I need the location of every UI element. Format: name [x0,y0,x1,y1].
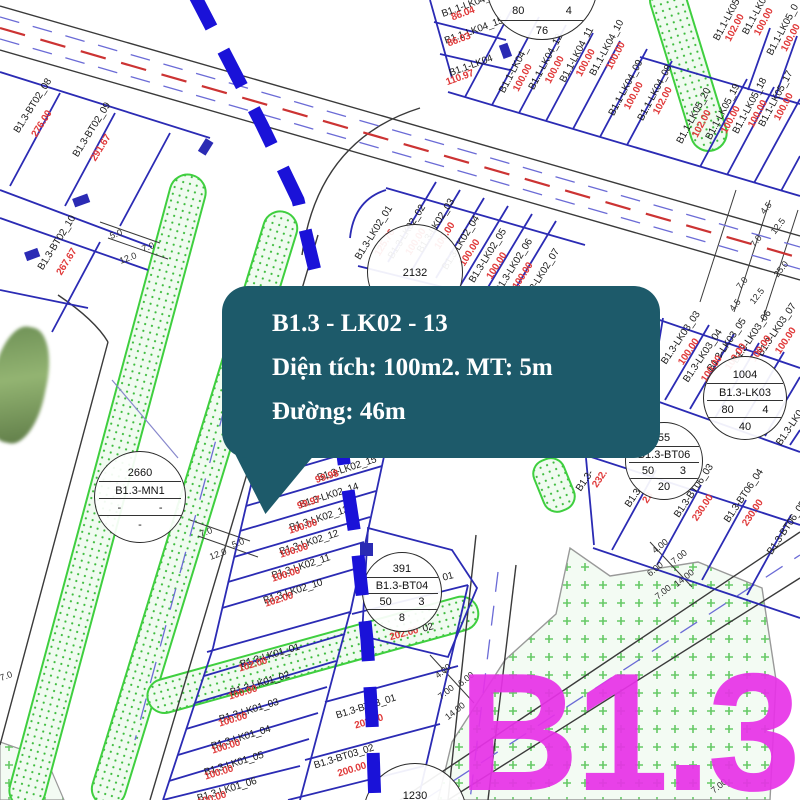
tooltip-title: B1.3 - LK02 - 13 [272,302,640,346]
map-canvas[interactable]: B1.3-BT02_08B1.3-BT02_09B1.3-BT02_10B1.1… [0,0,800,800]
tooltip: B1.3 - LK02 - 13 Diện tích: 100m2. MT: 5… [222,286,660,458]
tooltip-area-frontage: Diện tích: 100m2. MT: 5m [272,346,640,390]
zone-label: B1.3 [458,648,797,800]
tooltip-road-width: Đường: 46m [272,390,640,434]
